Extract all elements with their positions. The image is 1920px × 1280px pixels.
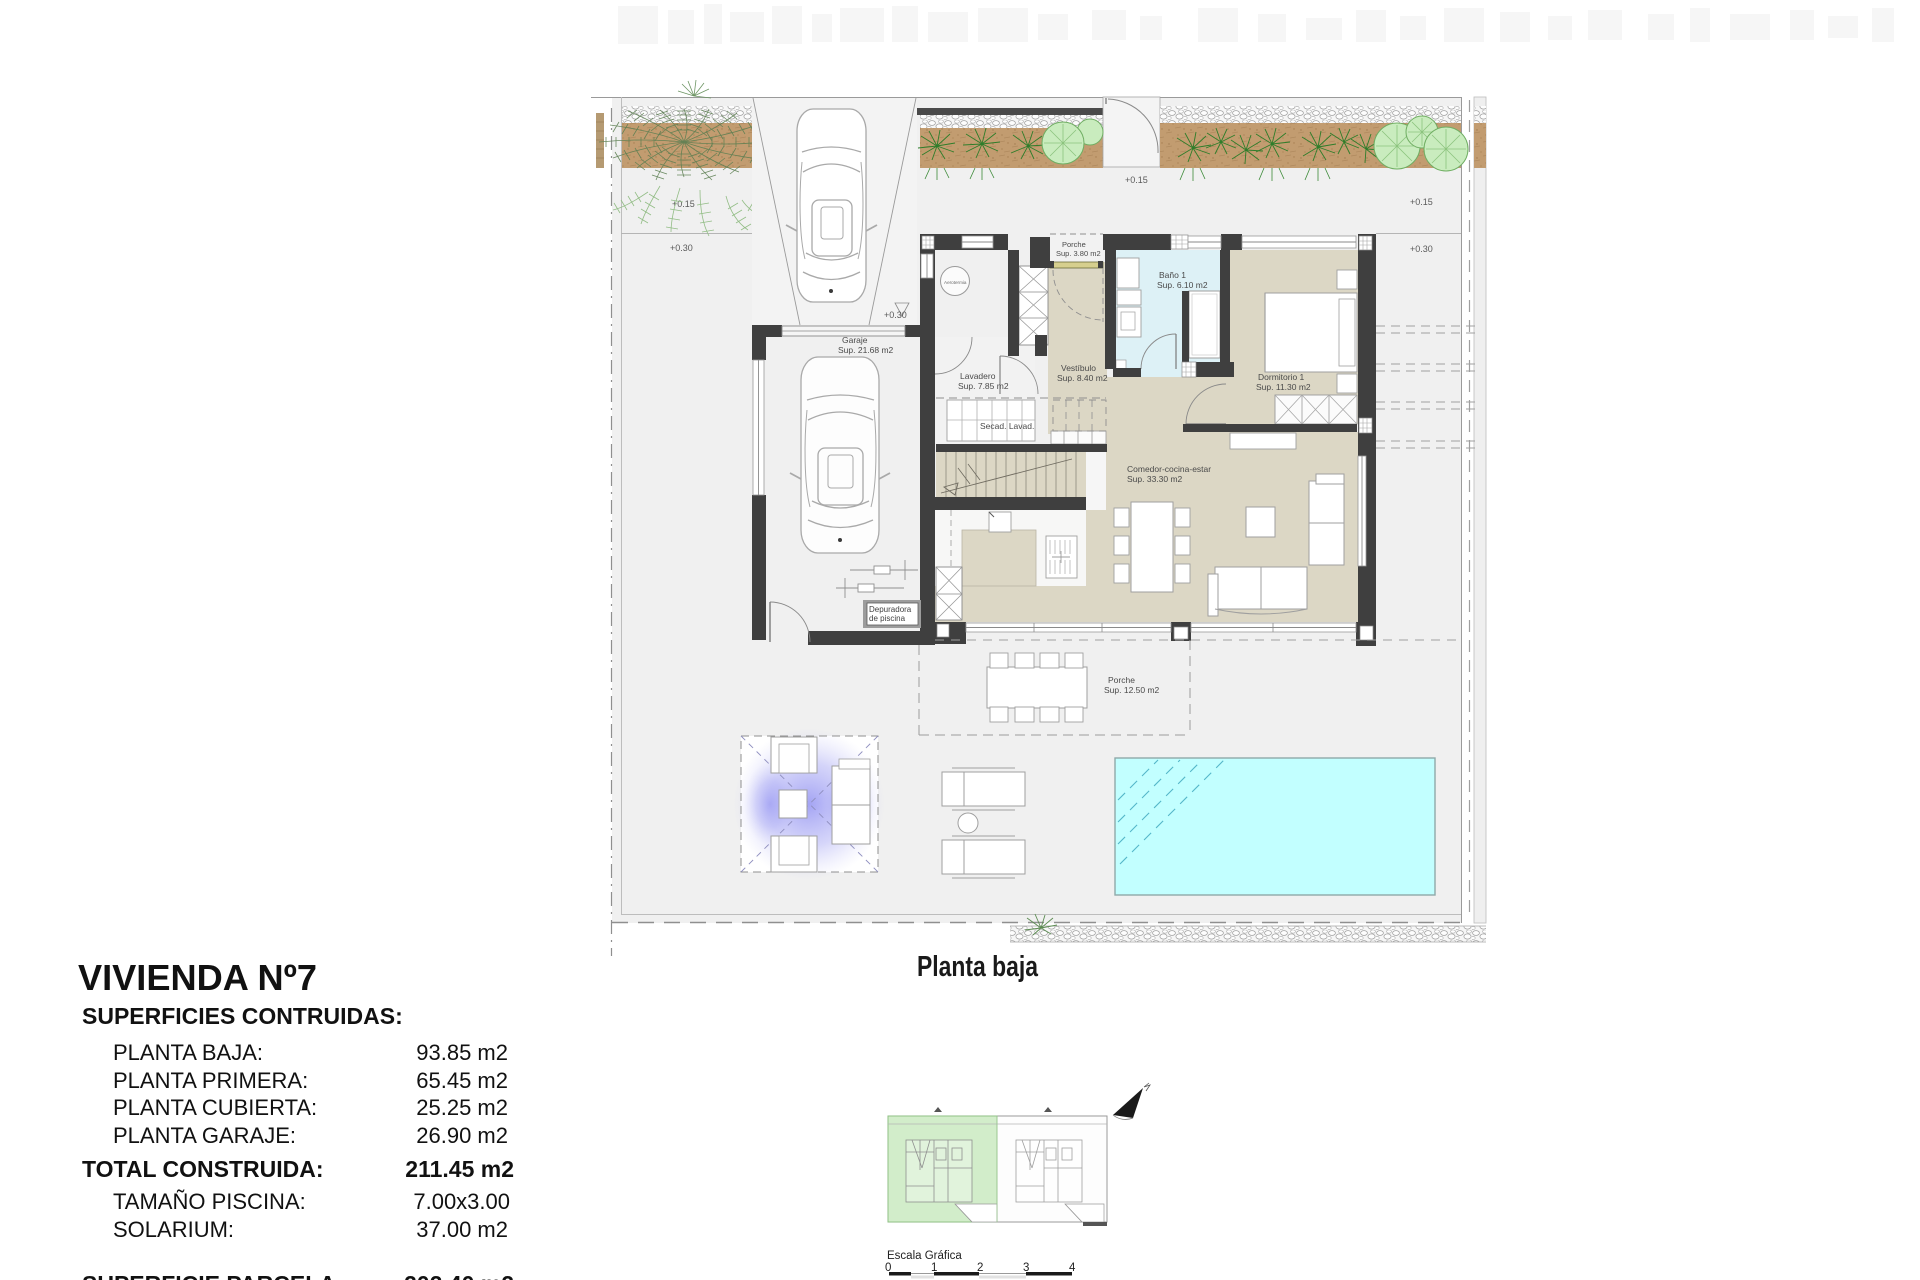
svg-text:Garaje: Garaje [842, 335, 868, 345]
svg-text:7.00x3.00: 7.00x3.00 [413, 1189, 510, 1214]
svg-text:+0.30: +0.30 [670, 243, 693, 253]
svg-text:SOLARIUM:: SOLARIUM: [113, 1217, 234, 1242]
svg-text:Dormitorio 1: Dormitorio 1 [1258, 372, 1305, 382]
svg-text:+0.15: +0.15 [1125, 175, 1148, 185]
svg-text:65.45 m2: 65.45 m2 [416, 1068, 508, 1093]
svg-text:VIVIENDA Nº7: VIVIENDA Nº7 [78, 957, 317, 998]
svg-text:211.45 m2: 211.45 m2 [405, 1156, 514, 1182]
svg-text:Secad. Lavad.: Secad. Lavad. [980, 421, 1034, 431]
svg-text:Sup. 21.68 m2: Sup. 21.68 m2 [838, 345, 894, 355]
svg-text:Sup. 6.10 m2: Sup. 6.10 m2 [1157, 280, 1208, 290]
svg-text:SUPERFICIE PARCELA:: SUPERFICIE PARCELA: [82, 1271, 344, 1280]
svg-text:TAMAÑO PISCINA:: TAMAÑO PISCINA: [113, 1189, 306, 1214]
svg-text:Porche: Porche [1062, 240, 1086, 249]
svg-text:Aerotermia: Aerotermia [944, 280, 967, 285]
svg-text:Lavadero: Lavadero [960, 371, 996, 381]
svg-text:PLANTA PRIMERA:: PLANTA PRIMERA: [113, 1068, 308, 1093]
svg-text:Sup. 33.30 m2: Sup. 33.30 m2 [1127, 474, 1183, 484]
svg-text:Sup. 12.50 m2: Sup. 12.50 m2 [1104, 685, 1160, 695]
svg-text:+0.15: +0.15 [1410, 197, 1433, 207]
svg-text:Baño 1: Baño 1 [1159, 270, 1186, 280]
svg-text:Sup. 7.85 m2: Sup. 7.85 m2 [958, 381, 1009, 391]
svg-text:de piscina: de piscina [869, 614, 906, 623]
svg-text:+0.30: +0.30 [1410, 244, 1433, 254]
svg-text:Vestíbulo: Vestíbulo [1061, 363, 1096, 373]
svg-text:PLANTA BAJA:: PLANTA BAJA: [113, 1040, 263, 1065]
svg-text:+0.30: +0.30 [884, 310, 907, 320]
svg-text:Sup. 11.30 m2: Sup. 11.30 m2 [1256, 382, 1311, 392]
svg-text:Sup. 8.40 m2: Sup. 8.40 m2 [1057, 373, 1108, 383]
svg-text:Comedor-cocina-estar: Comedor-cocina-estar [1127, 464, 1211, 474]
svg-text:Depuradora: Depuradora [869, 605, 912, 614]
svg-text:93.85 m2: 93.85 m2 [416, 1040, 508, 1065]
svg-text:SUPERFICIES CONTRUIDAS:: SUPERFICIES CONTRUIDAS: [82, 1003, 403, 1029]
svg-text:37.00 m2: 37.00 m2 [416, 1217, 508, 1242]
svg-text:PLANTA GARAJE:: PLANTA GARAJE: [113, 1123, 296, 1148]
svg-text:25.25 m2: 25.25 m2 [416, 1095, 508, 1120]
svg-text:Porche: Porche [1108, 675, 1135, 685]
svg-text:Planta baja: Planta baja [917, 951, 1039, 983]
svg-text:26.90 m2: 26.90 m2 [416, 1123, 508, 1148]
svg-text:PLANTA CUBIERTA:: PLANTA CUBIERTA: [113, 1095, 317, 1120]
svg-text:202.40 m2: 202.40 m2 [404, 1271, 514, 1280]
svg-text:Sup. 3.80 m2: Sup. 3.80 m2 [1056, 249, 1101, 258]
svg-text:TOTAL CONSTRUIDA:: TOTAL CONSTRUIDA: [82, 1156, 324, 1182]
svg-text:Escala Gráfica: Escala Gráfica [887, 1250, 962, 1262]
